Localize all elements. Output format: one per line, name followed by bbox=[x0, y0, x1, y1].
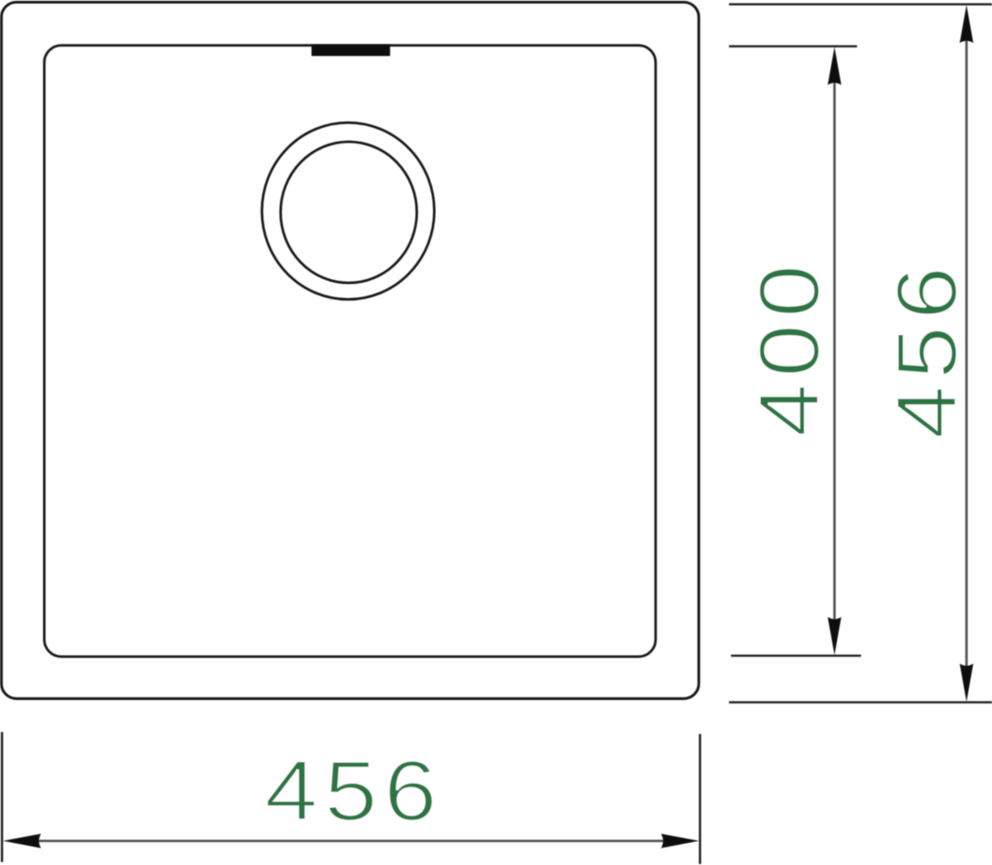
svg-text:456: 456 bbox=[265, 744, 444, 839]
svg-text:400: 400 bbox=[742, 258, 837, 437]
svg-text:456: 456 bbox=[880, 260, 975, 439]
